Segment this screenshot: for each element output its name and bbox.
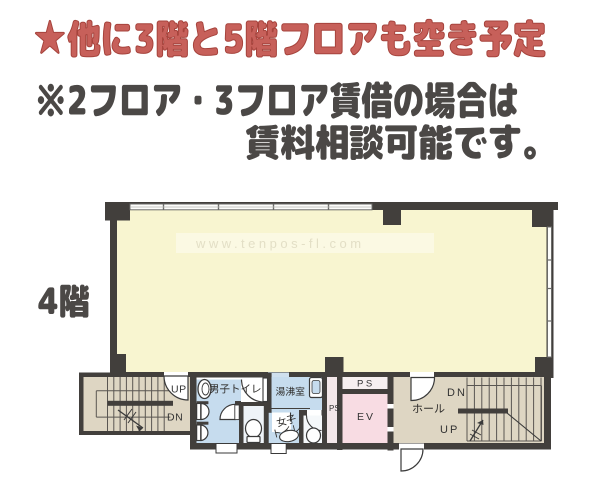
svg-text:DN: DN bbox=[447, 387, 467, 399]
svg-text:UP: UP bbox=[440, 424, 459, 436]
svg-text:DN: DN bbox=[167, 412, 183, 424]
svg-text:EV: EV bbox=[357, 411, 375, 423]
svg-text:www.tenpos-fl.com: www.tenpos-fl.com bbox=[195, 236, 365, 251]
svg-text:PS: PS bbox=[357, 379, 375, 390]
svg-text:PS: PS bbox=[329, 404, 340, 413]
svg-text:UP: UP bbox=[171, 384, 187, 396]
